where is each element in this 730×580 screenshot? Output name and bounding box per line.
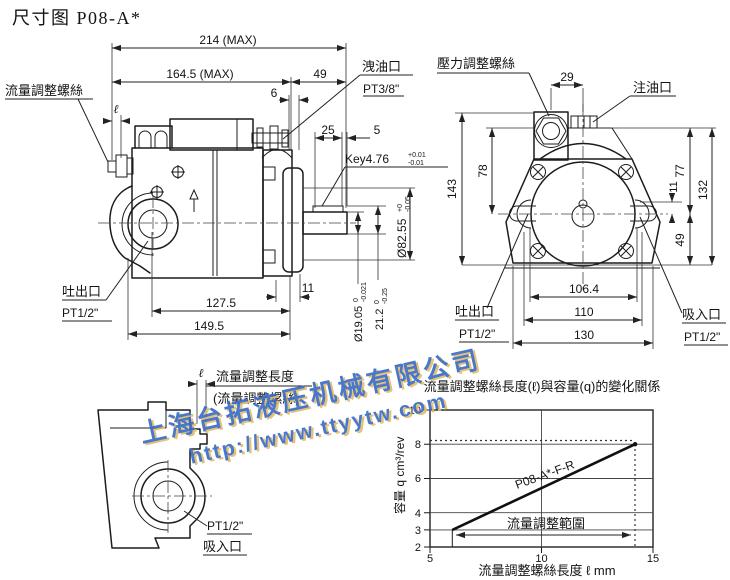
dim-149-5: 149.5 [194,319,224,333]
svg-text:-0.021: -0.021 [361,282,368,302]
dim-25: 25 [321,123,335,137]
svg-text:0: 0 [353,298,360,302]
ytick-2: 2 [415,542,421,554]
corner-screw-icon [531,165,634,259]
adjust-length-label: 流量調整長度 [216,369,294,384]
adjust-screw-paren-label: (流量調整螺絲) [213,391,300,406]
inlet-port-size-front: PT1/2" [684,330,720,344]
y-axis-label: 容量 q cm³/rev [392,437,407,514]
dim-rear-length: 49 [313,67,327,81]
key-tol-plus: +0.01 [408,152,426,159]
chart-title: 流量調整螺絲長度(ℓ)與容量(q)的變化關係 [424,379,661,394]
up-arrow-icon [190,190,198,212]
svg-text:+0: +0 [397,204,404,212]
svg-text:-0.05: -0.05 [405,196,412,212]
x-axis-label: 流量調整螺絲長度 ℓ mm [478,563,615,578]
outlet-port-size-side: PT1/2" [62,306,98,320]
dim-132: 132 [696,180,710,200]
dim-pilot-diameter: Ø82.55 +0 -0.05 [395,196,412,258]
dim-130: 130 [574,328,594,342]
dimension-drawing-page: 尺寸图 P08-A* [0,0,730,580]
dim-key-height: 21.2 0 -0.25 [374,288,389,330]
side-view-labels: 流量調整螺絲 洩油口 PT3/8" 吐出口 PT1/2" [5,59,413,321]
outlet-port-label-side: 吐出口 [62,284,101,299]
dim-106-4: 106.4 [569,282,599,296]
outlet-port-size-front: PT1/2" [459,327,495,341]
svg-text:Ø82.55: Ø82.55 [395,218,409,258]
dim-11-front: 11 [668,181,680,192]
key-size-label: Key4.76 [345,152,389,166]
oil-fill-port-label: 注油口 [633,80,672,95]
detail-view-labels: ℓ 流量調整長度 (流量調整螺絲) PT1/2" 吸入口 [184,366,312,555]
dim-ell-symbol: ℓ [114,102,119,116]
inlet-port-label-detail: 吸入口 [203,539,242,554]
dim-143: 143 [445,179,459,199]
dim-49: 49 [673,233,687,247]
xtick-15: 15 [647,553,659,565]
screw-cross-icon [150,165,185,199]
detail-ell-symbol: ℓ [199,366,204,380]
capacity-chart: 流量調整螺絲長度(ℓ)與容量(q)的變化關係 P08-A*-F-R 流量調整範圍… [392,379,660,578]
ytick-3: 3 [415,525,421,537]
xtick-5: 5 [427,553,433,565]
svg-text:-0.25: -0.25 [382,288,389,304]
dim-overall-length: 214 (MAX) [199,33,256,47]
dim-body-length: 164.5 (MAX) [166,67,233,81]
key-tol-minus: -0.01 [408,160,424,167]
side-view-dimensions: 214 (MAX) 164.5 (MAX) 49 6 ℓ 25 5 Key4.7… [104,33,448,342]
pressure-screw-label: 壓力調整螺絲 [437,56,515,71]
dim-5: 5 [374,123,381,137]
detail-view-outline [98,402,212,548]
svg-text:Ø19.05: Ø19.05 [353,306,365,342]
front-view-outline [498,104,668,292]
inlet-port-size-detail: PT1/2" [207,519,243,533]
dim-6: 6 [271,86,278,100]
side-view-outline [98,119,356,278]
page-title: 尺寸图 P08-A* [12,8,142,28]
ytick-8: 8 [415,439,421,451]
drain-port-size: PT3/8" [363,82,399,96]
range-annotation: 流量調整範圍 [507,516,585,531]
drain-port-label: 洩油口 [362,59,401,74]
dim-77: 77 [673,164,687,178]
dim-29: 29 [560,70,574,84]
flow-screw-label: 流量調整螺絲 [5,83,83,98]
ytick-10: 10 [409,405,421,417]
svg-text:0: 0 [374,300,381,304]
dim-shaft-diameter: Ø19.05 0 -0.021 [353,282,368,342]
dim-110: 110 [574,305,593,319]
dim-127-5: 127.5 [206,296,236,310]
inlet-port-label-front: 吸入口 [682,307,721,322]
svg-text:21.2: 21.2 [374,309,386,330]
ytick-4: 4 [415,508,421,520]
dim-11-side: 11 [302,281,315,295]
dim-78: 78 [476,164,490,178]
ytick-6: 6 [415,473,421,485]
